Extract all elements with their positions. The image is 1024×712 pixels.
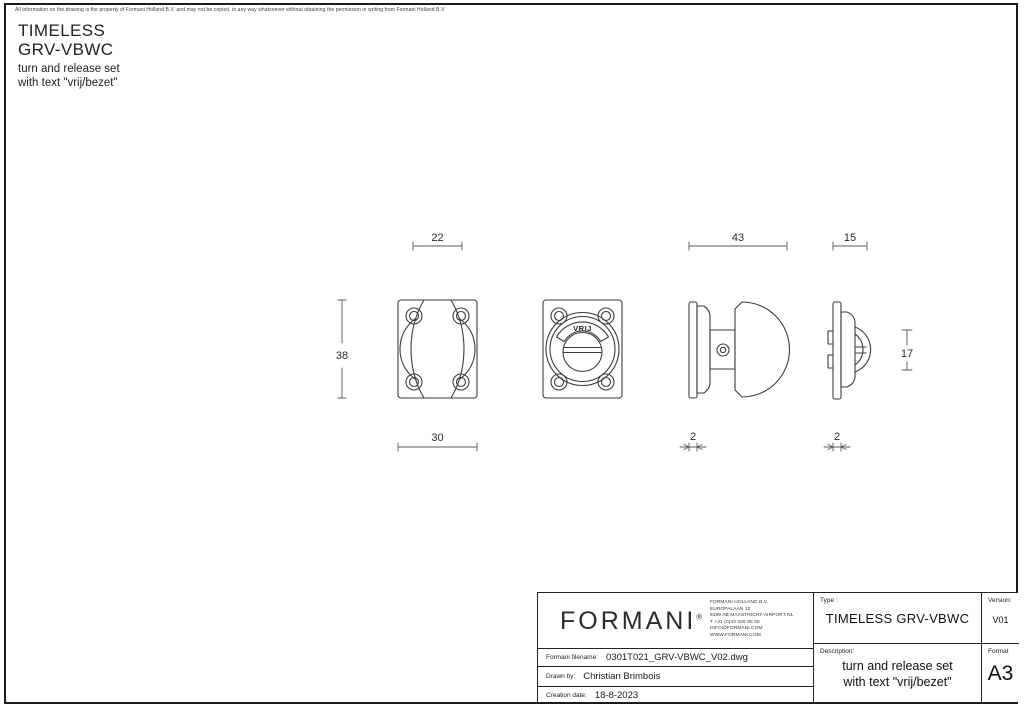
description-label: Description: bbox=[820, 648, 854, 655]
drawn-by-row: Drawn by: Christian Brimbois bbox=[538, 667, 814, 687]
title-block: FORMANI® FORMANI HOLLAND B.V. EUROPALAAN… bbox=[537, 592, 1018, 702]
creation-date-value: 18-8-2023 bbox=[595, 690, 638, 701]
type-cell: Type : TIMELESS GRV-VBWC bbox=[814, 593, 982, 644]
title-block-logo-cell: FORMANI® FORMANI HOLLAND B.V. EUROPALAAN… bbox=[538, 593, 814, 649]
filename-label: Formani filename: bbox=[546, 654, 598, 661]
view-side-turn bbox=[689, 302, 790, 398]
filename-value: 0301T021_GRV-VBWC_V02.dwg bbox=[606, 652, 748, 663]
dim-turn-plate-thickness: 2 bbox=[690, 431, 696, 443]
company-address: FORMANI HOLLAND B.V. EUROPALAAN 12 6199 … bbox=[710, 600, 794, 640]
description-cell: Description: turn and release set with t… bbox=[814, 644, 982, 703]
dim-release-depth: 15 bbox=[844, 232, 856, 244]
version-label: Version: bbox=[988, 597, 1012, 604]
creation-date-label: Creation date: bbox=[546, 692, 587, 699]
turn-knob-profile bbox=[735, 302, 790, 397]
drawn-by-value: Christian Brimbois bbox=[583, 671, 660, 682]
description-value: turn and release set with text "vrij/bez… bbox=[814, 658, 981, 690]
dim-turn-depth: 43 bbox=[732, 232, 744, 244]
vrij-label: VRIJ bbox=[573, 324, 592, 333]
view-side-release bbox=[828, 302, 871, 399]
drawn-by-label: Drawn by: bbox=[546, 673, 575, 680]
dim-knob-width: 22 bbox=[431, 232, 443, 244]
format-cell: Format A3 bbox=[982, 644, 1019, 703]
version-cell: Version: V01 bbox=[982, 593, 1019, 644]
creation-date-row: Creation date: 18-8-2023 bbox=[538, 687, 814, 703]
dim-release-knob-height: 17 bbox=[901, 348, 913, 360]
formani-logo: FORMANI® bbox=[560, 607, 702, 636]
view-front-turn bbox=[398, 300, 477, 398]
type-value: TIMELESS GRV-VBWC bbox=[814, 611, 981, 626]
format-label: Format bbox=[988, 648, 1009, 655]
set-screw bbox=[717, 344, 729, 356]
dim-rosette-height: 38 bbox=[336, 350, 348, 362]
dim-rosette-width: 30 bbox=[431, 432, 443, 444]
registered-mark: ® bbox=[696, 613, 702, 622]
view-front-release: VRIJ bbox=[543, 300, 622, 398]
type-label: Type : bbox=[820, 597, 838, 604]
drawing-sheet: All information on the drawing is the pr… bbox=[0, 0, 1024, 712]
format-value: A3 bbox=[982, 662, 1019, 686]
filename-row: Formani filename: 0301T021_GRV-VBWC_V02.… bbox=[538, 649, 814, 667]
release-knob-profile bbox=[855, 327, 871, 372]
version-value: V01 bbox=[982, 615, 1019, 625]
dim-release-plate-thickness: 2 bbox=[834, 431, 840, 443]
